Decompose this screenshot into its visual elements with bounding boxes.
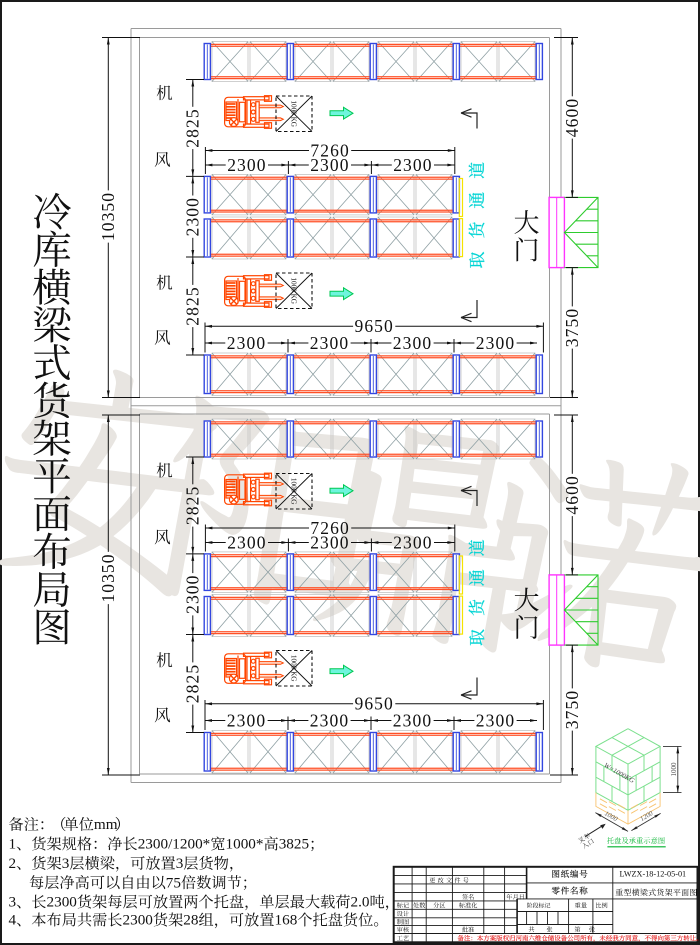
svg-text:LWZX-18-12-05-01: LWZX-18-12-05-01 bbox=[619, 870, 686, 879]
svg-text:1000: 1000 bbox=[670, 762, 678, 777]
svg-text:2825: 2825 bbox=[183, 108, 203, 147]
svg-text:1000*: 1000* bbox=[226, 836, 264, 853]
svg-text:2300: 2300 bbox=[393, 532, 432, 552]
svg-text:1000 KG: 1000 KG bbox=[290, 277, 298, 304]
svg-text:mm: mm bbox=[94, 816, 118, 833]
svg-text:2300: 2300 bbox=[393, 155, 432, 175]
svg-text:1: 1 bbox=[9, 836, 17, 853]
svg-text:2300: 2300 bbox=[310, 155, 349, 175]
svg-text:2300: 2300 bbox=[183, 197, 203, 236]
svg-text:4: 4 bbox=[9, 912, 17, 929]
svg-text:75: 75 bbox=[166, 874, 181, 891]
svg-text:2300: 2300 bbox=[227, 333, 266, 353]
svg-text:4600: 4600 bbox=[562, 475, 582, 514]
svg-text:10350: 10350 bbox=[98, 553, 118, 602]
svg-text:2825: 2825 bbox=[183, 664, 203, 703]
svg-text:2300: 2300 bbox=[227, 532, 266, 552]
svg-text:1000 KG: 1000 KG bbox=[290, 478, 298, 505]
svg-text:3: 3 bbox=[9, 894, 17, 911]
svg-text:28: 28 bbox=[183, 912, 199, 929]
svg-text:2300: 2300 bbox=[393, 333, 432, 353]
svg-text:2825: 2825 bbox=[183, 286, 203, 325]
svg-text:2.0: 2.0 bbox=[351, 894, 370, 911]
svg-text:2300: 2300 bbox=[310, 710, 349, 730]
svg-text:1000 KG: 1000 KG bbox=[290, 100, 298, 127]
svg-text:2300/1200*: 2300/1200* bbox=[138, 836, 211, 853]
svg-text:2300: 2300 bbox=[310, 532, 349, 552]
svg-text:2825: 2825 bbox=[183, 486, 203, 525]
svg-text:9650: 9650 bbox=[354, 694, 393, 714]
svg-text:4600: 4600 bbox=[562, 98, 582, 137]
svg-text:2300: 2300 bbox=[47, 894, 78, 911]
svg-text:3: 3 bbox=[62, 855, 70, 872]
svg-text:2300: 2300 bbox=[393, 710, 432, 730]
svg-text:3825: 3825 bbox=[279, 836, 309, 853]
svg-text:2300: 2300 bbox=[227, 155, 266, 175]
svg-text:9650: 9650 bbox=[354, 316, 393, 336]
svg-text:2: 2 bbox=[9, 855, 17, 872]
svg-text:168: 168 bbox=[275, 912, 298, 929]
svg-text:3: 3 bbox=[176, 855, 184, 872]
svg-text:2300: 2300 bbox=[227, 710, 266, 730]
svg-text:1000 KG: 1000 KG bbox=[290, 655, 298, 682]
svg-text:2300: 2300 bbox=[476, 333, 515, 353]
svg-text:2300: 2300 bbox=[476, 710, 515, 730]
svg-text:2300: 2300 bbox=[310, 333, 349, 353]
svg-text:2300: 2300 bbox=[183, 574, 203, 613]
svg-text:3750: 3750 bbox=[562, 308, 582, 347]
svg-text:3750: 3750 bbox=[562, 690, 582, 729]
svg-text:10350: 10350 bbox=[98, 192, 118, 241]
svg-text:2300: 2300 bbox=[123, 912, 154, 929]
